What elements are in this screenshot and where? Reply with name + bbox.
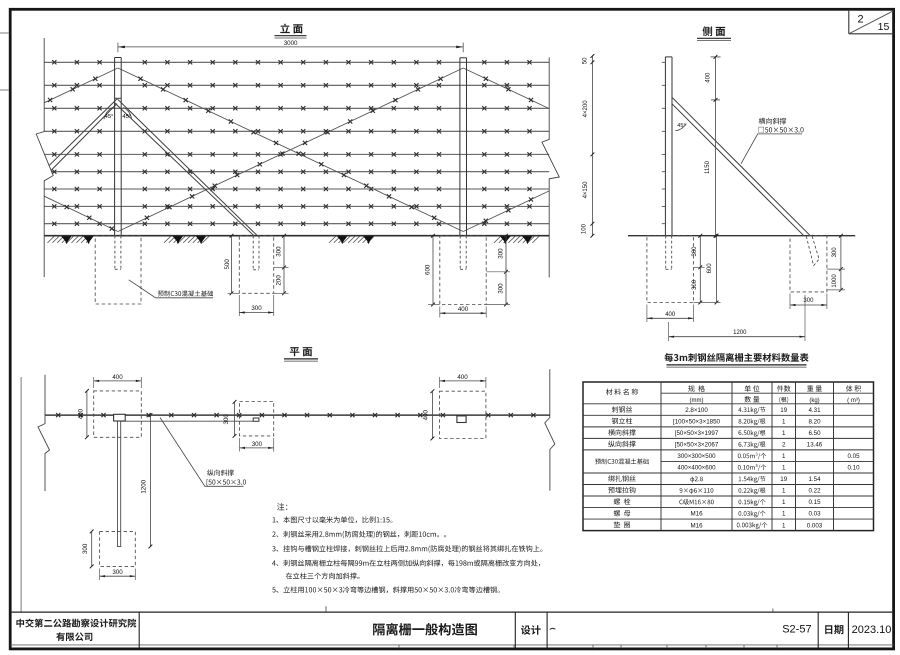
- svg-text:1.54: 1.54: [808, 476, 821, 483]
- svg-text:400: 400: [706, 72, 712, 83]
- svg-text:1: 1: [782, 430, 786, 437]
- svg-text:400×400×600: 400×400×600: [677, 465, 716, 472]
- svg-text:100: 100: [581, 223, 587, 234]
- svg-text:400: 400: [77, 408, 84, 419]
- svg-text:300: 300: [251, 305, 262, 312]
- svg-text:0.10: 0.10: [847, 465, 860, 472]
- svg-text:600: 600: [424, 264, 431, 275]
- svg-text:(mm): (mm): [690, 398, 704, 404]
- svg-text:50: 50: [583, 57, 589, 64]
- svg-text:600: 600: [707, 263, 713, 274]
- svg-text:4×200: 4×200: [583, 100, 589, 118]
- svg-text:1000: 1000: [832, 274, 838, 288]
- svg-text:300: 300: [498, 248, 505, 259]
- svg-text:300: 300: [832, 247, 838, 258]
- svg-text:400: 400: [665, 312, 676, 318]
- svg-text:400: 400: [457, 374, 468, 381]
- svg-text:1: 1: [782, 499, 786, 506]
- svg-text:1: 1: [782, 511, 786, 518]
- svg-text:300: 300: [112, 569, 123, 576]
- svg-text:1: 1: [782, 488, 786, 495]
- svg-text:45°: 45°: [122, 114, 131, 120]
- svg-text:[50×50×3×1997: [50×50×3×1997: [675, 430, 719, 437]
- svg-text:6.50: 6.50: [808, 430, 821, 437]
- svg-text:0.15: 0.15: [808, 499, 821, 506]
- svg-text:500: 500: [224, 259, 231, 270]
- svg-text:[50×50×3×2067: [50×50×3×2067: [675, 442, 719, 449]
- svg-text:300: 300: [692, 279, 698, 290]
- svg-text:2.8×100: 2.8×100: [685, 407, 708, 414]
- svg-text:400: 400: [423, 409, 430, 420]
- svg-text:M16: M16: [690, 511, 703, 518]
- svg-text:19: 19: [780, 407, 787, 414]
- svg-text:300: 300: [223, 414, 230, 425]
- svg-text:0.003: 0.003: [807, 522, 823, 529]
- svg-text:M16: M16: [690, 522, 703, 529]
- svg-text:4×150: 4×150: [583, 181, 589, 199]
- svg-text:2: 2: [857, 14, 863, 26]
- svg-text:300: 300: [498, 283, 505, 294]
- svg-text:[100×50×3×1850: [100×50×3×1850: [673, 419, 721, 426]
- svg-text:300: 300: [252, 441, 263, 448]
- svg-text:0.22: 0.22: [808, 488, 821, 495]
- svg-text:400: 400: [458, 306, 469, 313]
- svg-text:13.46: 13.46: [807, 442, 823, 449]
- svg-text:4.31: 4.31: [808, 407, 821, 414]
- svg-text:300: 300: [82, 543, 89, 554]
- svg-text:400: 400: [112, 374, 123, 381]
- svg-text:300: 300: [275, 246, 282, 257]
- svg-text:0.05: 0.05: [847, 453, 860, 460]
- svg-text:1: 1: [782, 465, 786, 472]
- svg-text:1: 1: [782, 419, 786, 426]
- svg-text:( m³): ( m³): [847, 398, 860, 404]
- svg-text:1: 1: [782, 522, 786, 529]
- svg-text:300: 300: [692, 246, 698, 257]
- svg-text:(kg): (kg): [809, 398, 819, 404]
- svg-text:3000: 3000: [284, 40, 298, 47]
- svg-text:1200: 1200: [140, 479, 147, 493]
- svg-text:200: 200: [275, 275, 282, 286]
- svg-text:19: 19: [780, 476, 787, 483]
- svg-text:2023.10: 2023.10: [852, 624, 892, 636]
- svg-text:15: 15: [878, 21, 890, 33]
- svg-text:45°: 45°: [105, 114, 114, 120]
- svg-text:8.20: 8.20: [808, 419, 821, 426]
- svg-text:0.03: 0.03: [808, 511, 821, 518]
- svg-text:1150: 1150: [705, 160, 711, 174]
- svg-text:1: 1: [782, 453, 786, 460]
- svg-text:1200: 1200: [733, 330, 747, 336]
- svg-text:2: 2: [782, 442, 786, 449]
- svg-text:S2-57: S2-57: [782, 624, 811, 636]
- svg-text:300×300×500: 300×300×500: [677, 453, 716, 460]
